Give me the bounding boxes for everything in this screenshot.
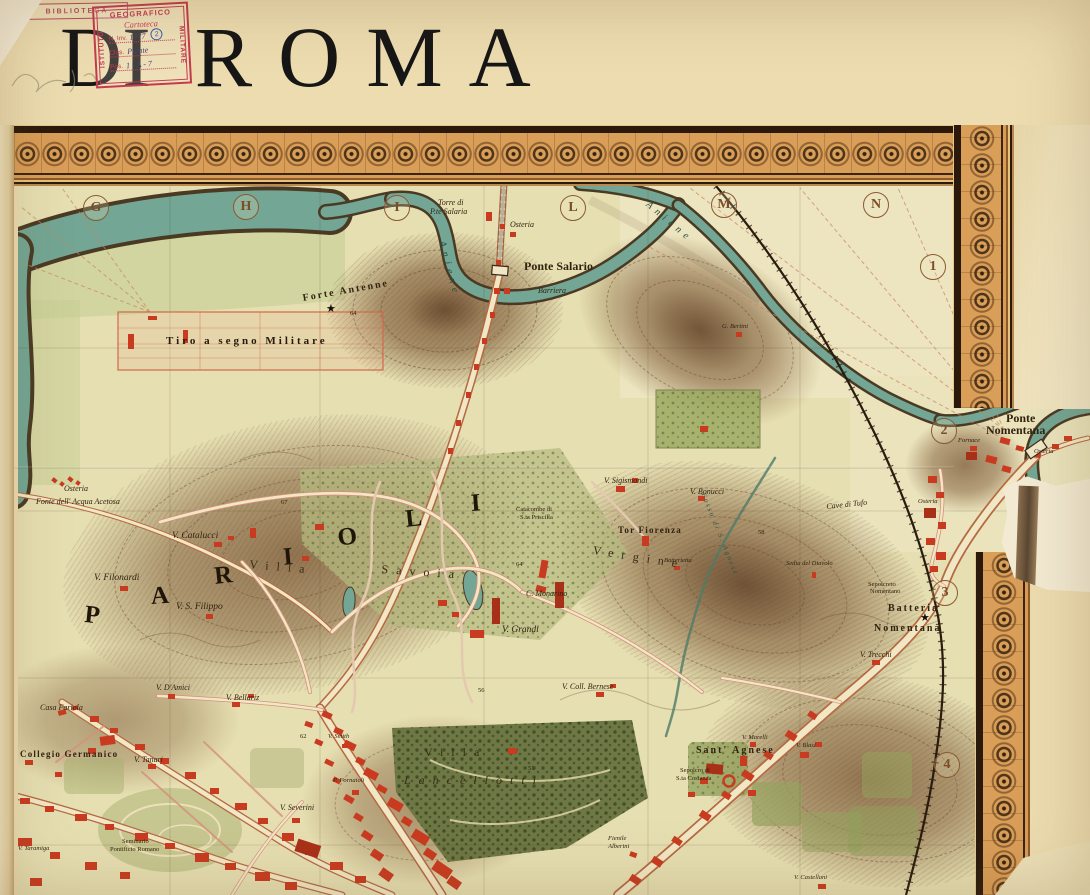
torn-paper-top-right [1014, 125, 1090, 409]
frame-right-band-upper [959, 125, 1005, 408]
paper-crease [14, 466, 954, 469]
folded-map-scrap [1015, 486, 1039, 589]
frame-top-inner-line [14, 173, 1014, 180]
map-sheet: DI ROMA BIBLIOTECA ISTITUTO MILITARE GEO… [0, 0, 1090, 895]
frame-right-inner-line [1001, 125, 1008, 408]
shooting-range [118, 312, 383, 370]
frame-top-band [14, 131, 1014, 177]
frame-right-inner-line-lower [1023, 552, 1030, 895]
frame-right-band-lower [981, 552, 1027, 895]
torn-paper-middle-right [1000, 474, 1090, 592]
paper-left-edge [0, 125, 14, 895]
frame-top-innermost-line [14, 180, 1014, 186]
